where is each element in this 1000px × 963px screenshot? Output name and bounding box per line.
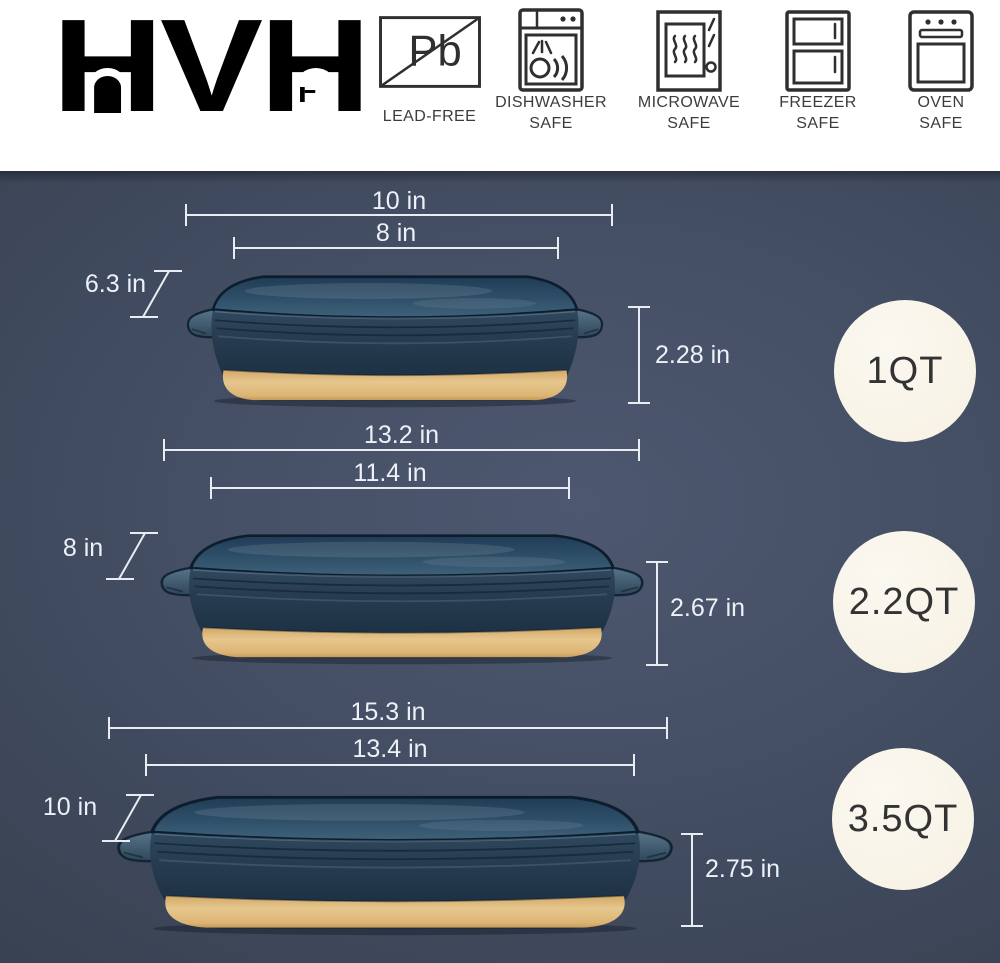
dish1-depth-line xyxy=(638,306,640,404)
oven-icon-box xyxy=(908,6,974,92)
dish1-inner-length-line xyxy=(233,247,559,249)
feature-label: SAFE xyxy=(529,113,572,134)
feature-oven-safe: OVEN SAFE xyxy=(876,6,1000,134)
oven-icon xyxy=(908,10,974,92)
dish1-image xyxy=(183,267,607,409)
dish2-outer-length-line xyxy=(163,449,640,451)
lead-free-icon-box: Pb xyxy=(378,6,482,92)
dish3-outer-length-label: 15.3 in xyxy=(108,698,668,726)
hvh-logo: HVH xyxy=(52,16,382,118)
feature-label: SAFE xyxy=(667,113,710,134)
dish2-image xyxy=(156,526,648,666)
capacity-text: 1QT xyxy=(867,350,944,393)
feature-label: MICROWAVE xyxy=(638,92,740,113)
feature-microwave-safe: MICROWAVE SAFE xyxy=(619,6,759,134)
feature-dishwasher-safe: DISHWASHER SAFE xyxy=(481,6,621,134)
freezer-icon-box xyxy=(785,6,851,92)
dish3-outer-length-line xyxy=(108,727,668,729)
lead-free-icon: Pb xyxy=(378,12,482,92)
dishwasher-icon-box xyxy=(518,6,584,92)
dish3-image xyxy=(112,787,678,937)
product-stage: 10 in 8 in 6.3 in 2.28 in 1QT 13.2 in 11… xyxy=(0,171,1000,963)
dish1-outer-length-label: 10 in xyxy=(185,187,613,215)
dish3-depth-line xyxy=(691,833,693,927)
dish3-inner-length-label: 13.4 in xyxy=(145,735,635,763)
dish2-depth-line xyxy=(656,561,658,666)
capacity-text: 3.5QT xyxy=(848,798,959,841)
dish1-depth-label: 2.28 in xyxy=(655,341,730,369)
dish2-inner-length-line xyxy=(210,487,570,489)
dish3-capacity-badge: 3.5QT xyxy=(832,748,974,890)
feature-label: SAFE xyxy=(919,113,962,134)
dishwasher-icon xyxy=(518,8,584,92)
dish2-outer-length-label: 13.2 in xyxy=(163,421,640,449)
logo-door xyxy=(94,76,121,113)
header: HVH Pb LEAD-FREE xyxy=(0,0,1000,171)
feature-label: OVEN xyxy=(918,92,965,113)
dish1-capacity-badge: 1QT xyxy=(834,300,976,442)
freezer-icon xyxy=(785,10,851,92)
dish1-width-line xyxy=(128,267,184,323)
microwave-icon xyxy=(656,10,722,92)
microwave-icon-box xyxy=(656,6,722,92)
capacity-text: 2.2QT xyxy=(849,581,960,624)
dish2-width-line xyxy=(104,529,160,585)
feature-label: DISHWASHER xyxy=(495,92,607,113)
feature-label: FREEZER xyxy=(779,92,856,113)
feature-label: LEAD-FREE xyxy=(383,106,476,127)
dish3-width-line xyxy=(100,791,156,847)
logo-door-arch-right xyxy=(297,68,336,113)
feature-freezer-safe: FREEZER SAFE xyxy=(748,6,888,134)
dish3-depth-label: 2.75 in xyxy=(705,855,780,883)
dish2-depth-label: 2.67 in xyxy=(670,594,745,622)
dish3-inner-length-line xyxy=(145,764,635,766)
product-infographic: HVH Pb LEAD-FREE xyxy=(0,0,1000,963)
dish1-inner-length-label: 8 in xyxy=(233,219,559,247)
logo-door-arch-left xyxy=(89,68,125,113)
feature-label: SAFE xyxy=(796,113,839,134)
dish2-capacity-badge: 2.2QT xyxy=(833,531,975,673)
logo-door-handle-bar xyxy=(305,90,316,93)
dish1-outer-length-line xyxy=(185,214,613,216)
dish2-inner-length-label: 11.4 in xyxy=(210,459,570,487)
